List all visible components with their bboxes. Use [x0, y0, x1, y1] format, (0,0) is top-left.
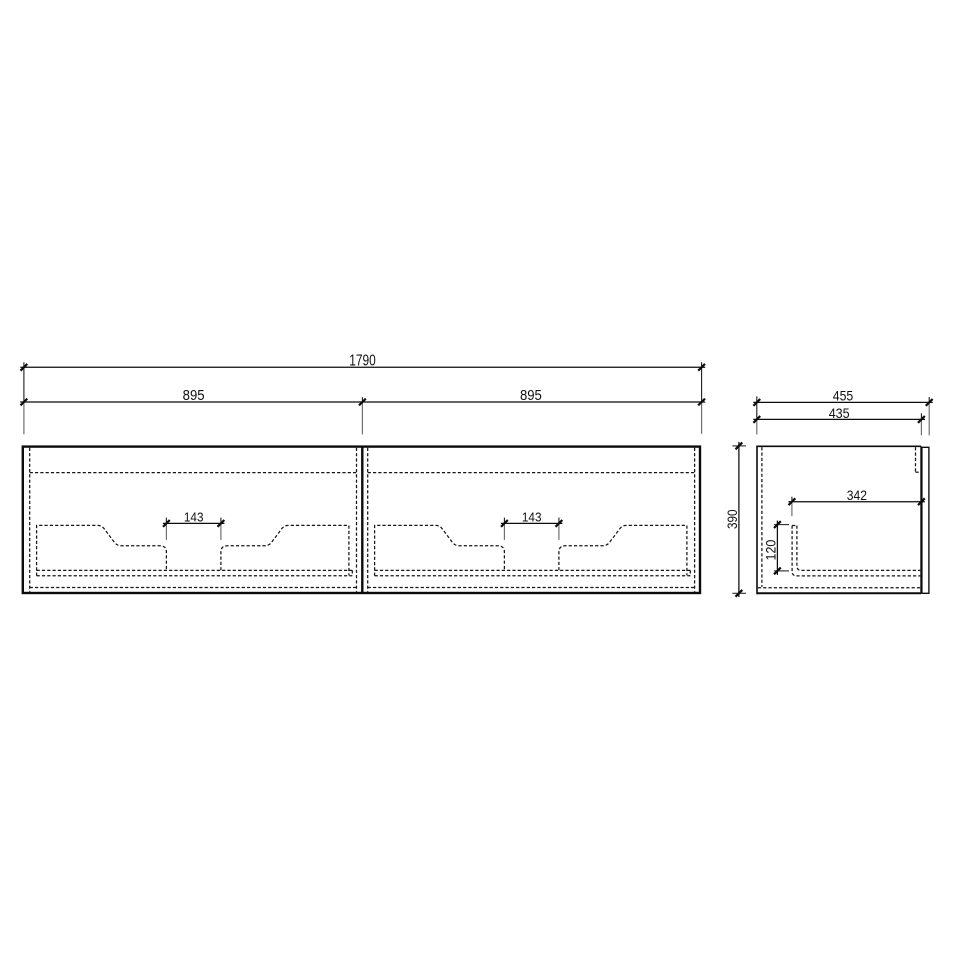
svg-text:895: 895: [520, 387, 542, 404]
svg-text:895: 895: [183, 387, 205, 404]
svg-text:143: 143: [184, 509, 204, 524]
svg-text:143: 143: [522, 509, 542, 524]
svg-text:435: 435: [829, 406, 850, 421]
svg-text:1790: 1790: [349, 352, 376, 369]
svg-text:455: 455: [833, 389, 854, 404]
svg-text:120: 120: [764, 539, 779, 560]
svg-text:342: 342: [847, 488, 867, 503]
svg-text:390: 390: [725, 509, 740, 529]
